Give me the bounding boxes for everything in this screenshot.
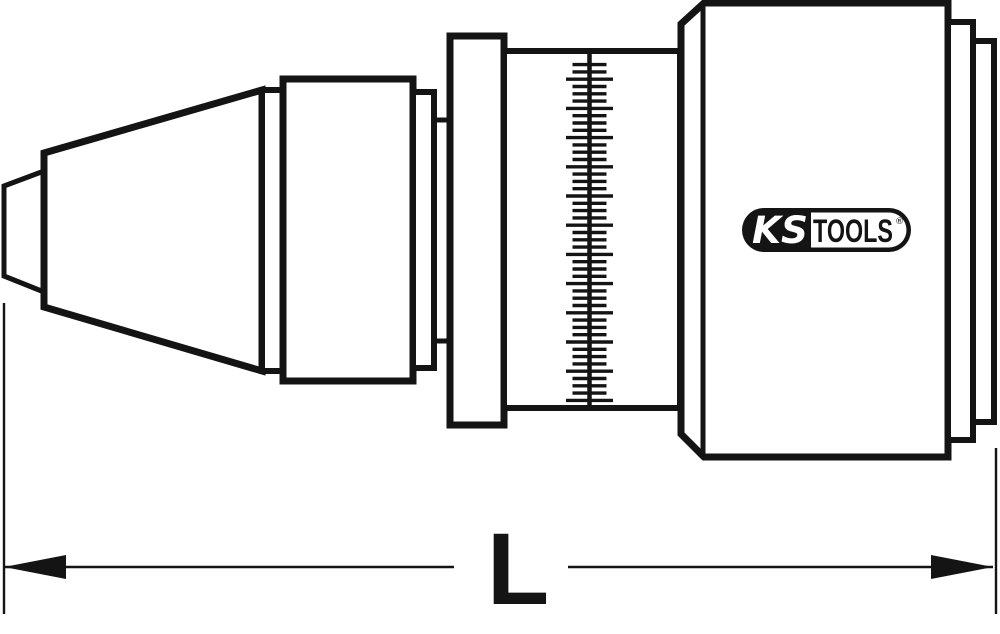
right-arrowhead-icon [931,555,993,579]
dimension-label: L [487,512,549,626]
sleeve-cylinder [283,79,413,381]
scale-drum [504,51,680,408]
logo-tools-text: TOOLS [813,213,893,249]
chuck-tip [4,171,44,292]
logo-ks-text: KS [752,209,808,252]
collar-rear [413,92,434,368]
ks-tools-logo: KS TOOLS ® [742,208,911,252]
product-illustration: KS TOOLS ® L [0,0,1000,634]
end-ring-1 [948,22,973,440]
chuck-cone [44,90,262,371]
left-arrowhead-icon [4,555,66,579]
logo-registered-mark: ® [895,217,904,227]
technical-drawing: KS TOOLS ® L [0,0,1000,634]
end-ring-2 [973,41,994,422]
flange-disc [450,36,504,425]
